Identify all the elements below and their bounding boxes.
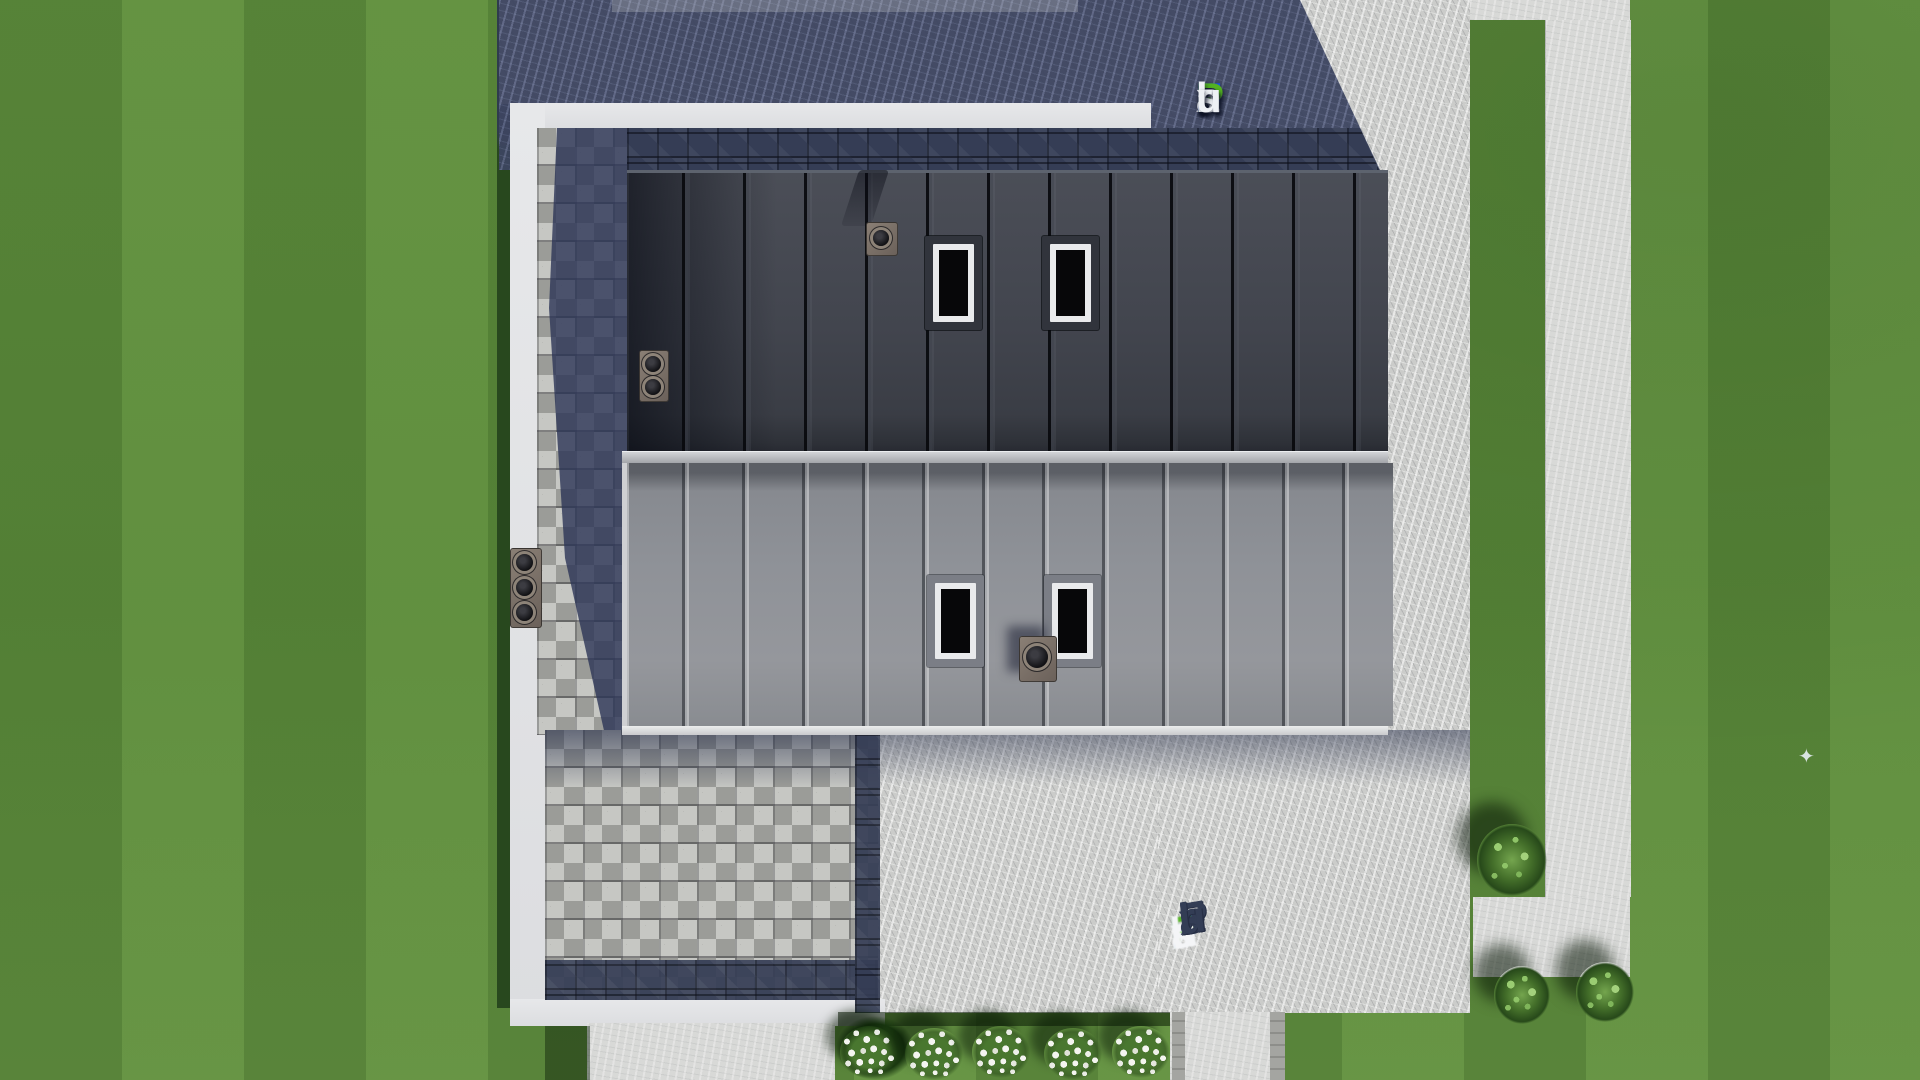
- eave-fascia: [622, 726, 1388, 735]
- vent-pipe-icon: [516, 604, 533, 621]
- roof-vent-double: [639, 350, 669, 402]
- aerial-render-scene: FixPlans.ru FixPlans.ru FixPlans.ru ✦: [0, 0, 1920, 1080]
- path-border-left: [1172, 1012, 1185, 1080]
- logo-letter: u: [1196, 74, 1222, 122]
- paver-band-shadowed: [537, 128, 1388, 172]
- roof-lower-light-section: [622, 463, 1393, 726]
- sparkle-icon: ✦: [1798, 744, 1815, 769]
- vent-pipe-icon: [516, 554, 533, 571]
- bush-bottom-left: [1494, 966, 1550, 1024]
- patio-shadow-right: [855, 730, 880, 1013]
- path-border-right: [1270, 1012, 1285, 1080]
- flower-bed: [905, 1028, 963, 1080]
- eave-shadow-on-patio: [545, 730, 878, 788]
- skylight-upper-left: [925, 236, 982, 330]
- path-bottom-center-left: [587, 1023, 835, 1080]
- skylight-upper-right: [1042, 236, 1099, 330]
- flower-bed: [1112, 1026, 1170, 1078]
- flower-bed: [840, 1026, 898, 1078]
- vent-pipe-icon: [1026, 646, 1048, 668]
- vent-pipe-icon: [645, 379, 661, 395]
- eave-shadow-on-terrace: [880, 730, 1470, 785]
- garden-path-right-vertical: [1545, 20, 1631, 897]
- walkway-bottom-band: [510, 999, 885, 1026]
- skylight-lower-left: [927, 575, 984, 667]
- vent-pipe-icon: [516, 579, 533, 596]
- skylight-glass: [933, 244, 974, 322]
- chimney-triple: [510, 548, 542, 628]
- vent-pipe-icon: [645, 356, 661, 372]
- bush-in-planter: [1477, 824, 1547, 896]
- skylight-glass: [1052, 583, 1093, 659]
- top-edge-highlight: [612, 0, 1078, 12]
- grass-shadow-below-patio: [545, 1026, 590, 1080]
- vent-pipe-icon: [873, 230, 889, 246]
- roof-upper-dark-section: [627, 170, 1388, 454]
- walkway-top-band: [510, 103, 1151, 129]
- skylight-glass: [935, 583, 976, 659]
- roof-vent-round-lower: [1019, 636, 1057, 682]
- roof-vent-round-upper: [866, 222, 898, 256]
- garden-path-top-band: [1470, 0, 1630, 20]
- flower-bed: [1044, 1028, 1102, 1080]
- flower-bed: [972, 1026, 1030, 1078]
- bush-bottom-right: [1576, 962, 1634, 1022]
- patio-shadow-bottom: [545, 960, 878, 1000]
- path-bottom-center-right: [1170, 1012, 1285, 1080]
- skylight-glass: [1050, 244, 1091, 322]
